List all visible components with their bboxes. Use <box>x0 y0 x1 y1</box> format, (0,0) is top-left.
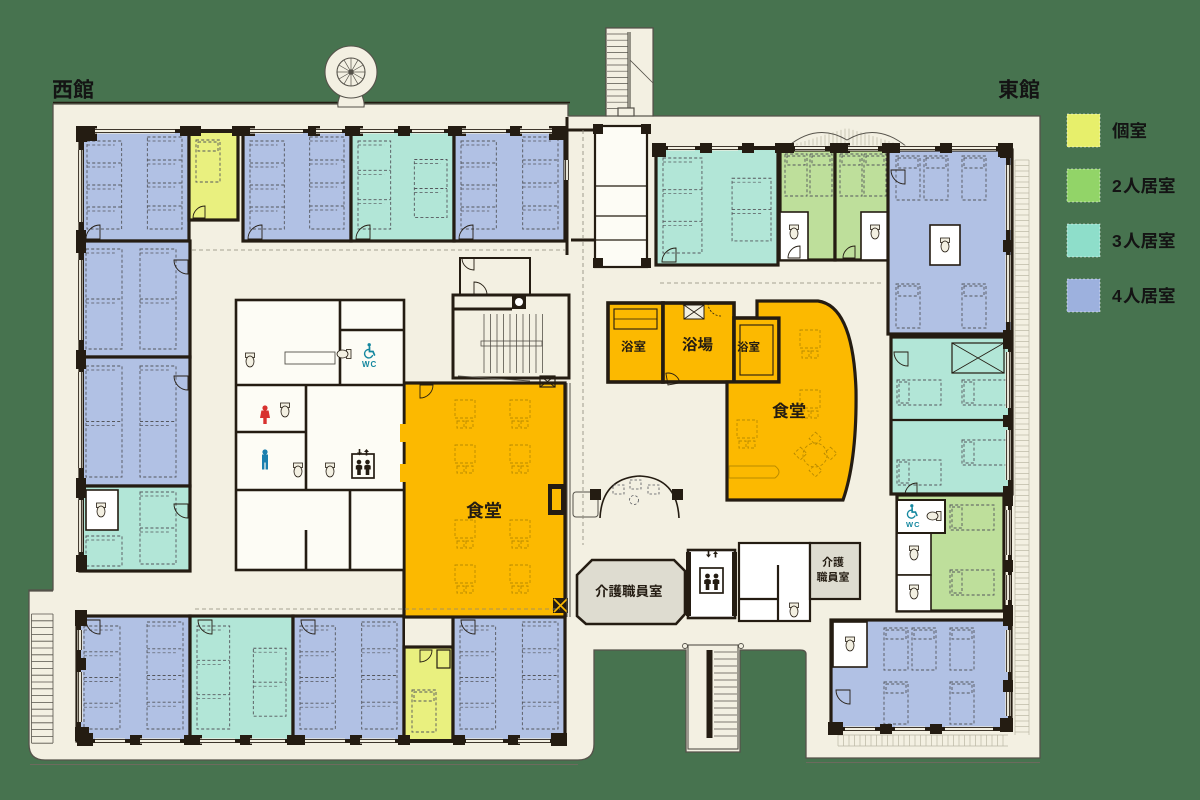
svg-text:4: 4 <box>1112 286 1122 306</box>
svg-text:WC: WC <box>906 520 921 529</box>
svg-text:3: 3 <box>1112 231 1122 251</box>
svg-text:WC: WC <box>362 360 377 369</box>
svg-text:2: 2 <box>1112 176 1122 196</box>
